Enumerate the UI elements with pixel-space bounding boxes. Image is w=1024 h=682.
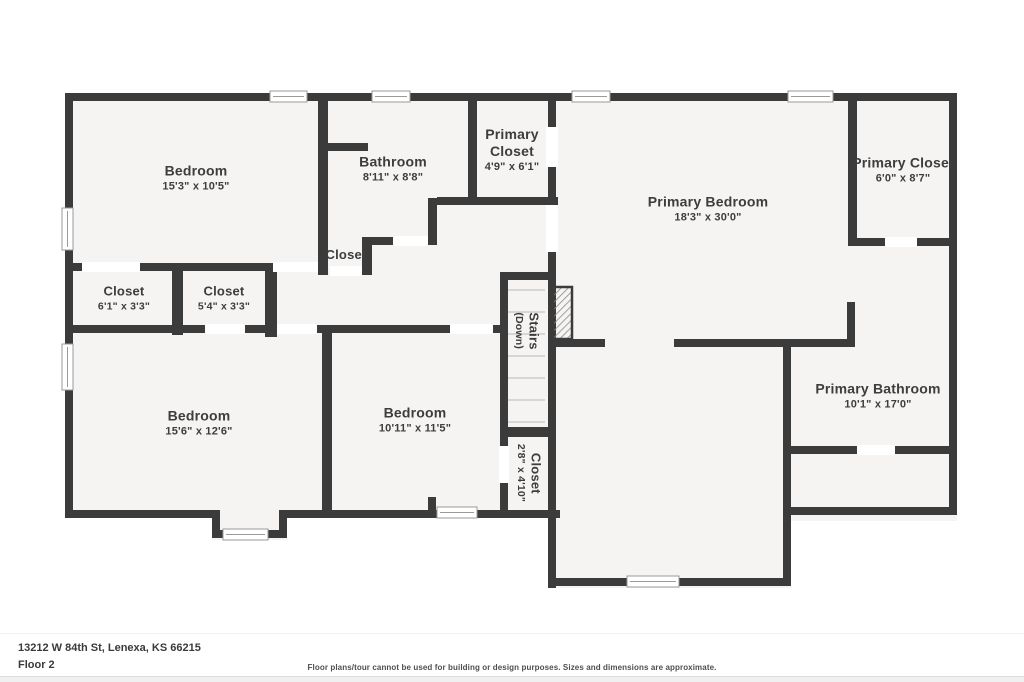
room-label-primary-closet-right: Primary Closet 6'0" x 8'7" (852, 155, 954, 186)
window-icon (788, 91, 833, 102)
room-label-closet-1: Closet 6'1" x 3'3" (98, 283, 150, 312)
window-icon (572, 91, 610, 102)
stairs-hatch-area (553, 287, 572, 339)
window-icon (270, 91, 307, 102)
window-icon (372, 91, 410, 102)
floor-label: Floor 2 (18, 659, 55, 671)
window-icon (62, 208, 73, 250)
window-icon (62, 344, 73, 390)
room-label-primary-bathroom: Primary Bathroom 10'1" x 17'0" (815, 381, 940, 412)
room-label-primary-bedroom: Primary Bedroom 18'3" x 30'0" (648, 194, 768, 225)
room-label-bedroom-top-left: Bedroom 15'3" x 10'5" (162, 163, 229, 194)
room-label-bedroom-bottom-middle: Bedroom 10'11" x 11'5" (379, 405, 451, 436)
room-label-closet-2: Closet 5'4" x 3'3" (198, 283, 250, 312)
room-label-hall-closet: Closet (326, 247, 367, 263)
disclaimer-text: Floor plans/tour cannot be used for buil… (308, 663, 717, 672)
room-label-bathroom: Bathroom 8'11" x 8'8" (359, 154, 427, 185)
room-label-stairs: Stairs (Down) (512, 312, 541, 349)
room-label-bedroom-bottom-left: Bedroom 15'6" x 12'6" (165, 408, 232, 439)
window-icon (437, 507, 477, 518)
room-label-primary-closet-left: Primary Closet 4'9" x 6'1" (475, 126, 549, 174)
window-icon (627, 576, 679, 587)
footer-divider (0, 633, 1024, 634)
window-icon (223, 529, 268, 540)
bottom-edge-strip (0, 676, 1024, 682)
address-text: 13212 W 84th St, Lenexa, KS 66215 (18, 642, 201, 654)
floor-plan-page: Bedroom 15'3" x 10'5" Bathroom 8'11" x 8… (0, 0, 1024, 682)
room-label-closet-under-stairs: Closet 2'8" x 4'10" (514, 444, 543, 502)
